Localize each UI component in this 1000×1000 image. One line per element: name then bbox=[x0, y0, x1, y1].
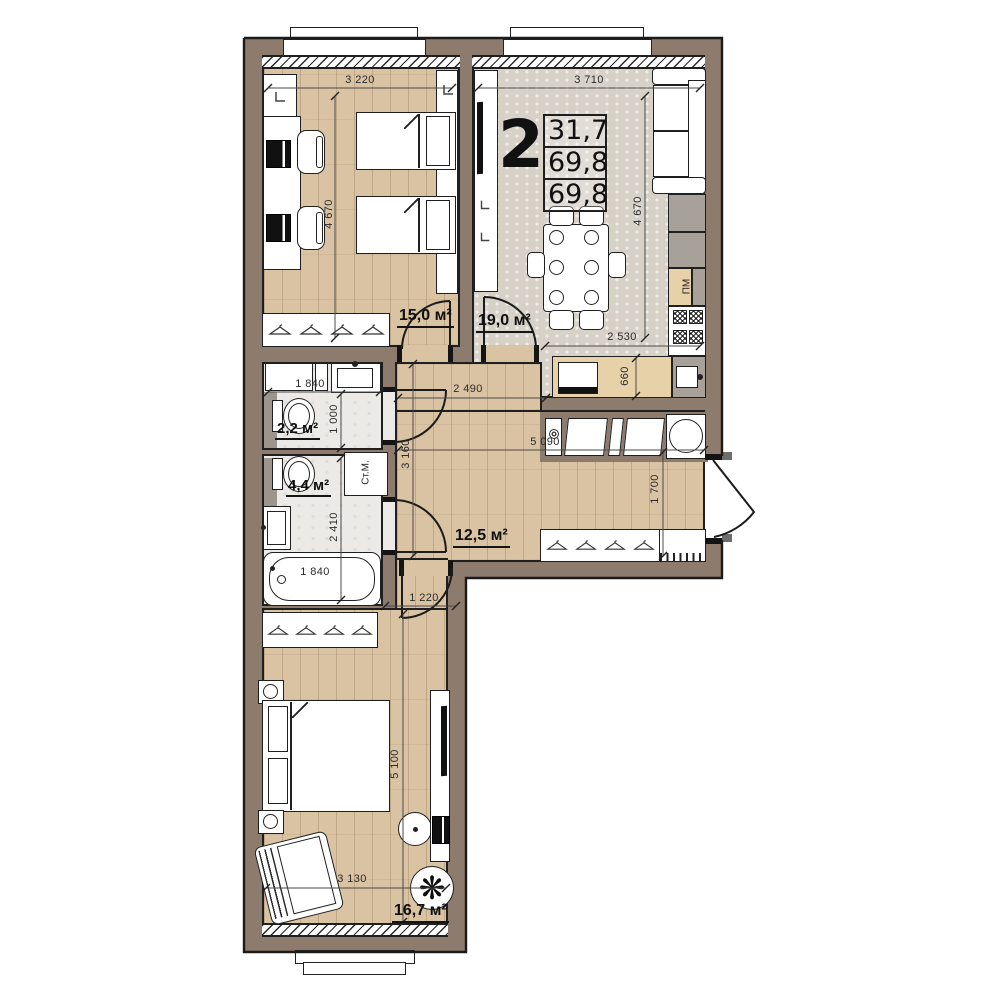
faucet-icon bbox=[261, 525, 266, 530]
dining-chair bbox=[527, 252, 545, 278]
label-hallway-area: 12,5 м² bbox=[453, 527, 510, 548]
door-jamb bbox=[481, 345, 486, 362]
door-jamb bbox=[705, 454, 722, 460]
dim-corridor-width: 1 220 bbox=[384, 592, 464, 604]
kitchen-sink bbox=[676, 366, 698, 388]
dim-kitchen-width: 3 710 bbox=[549, 74, 629, 86]
sofa-cushion bbox=[653, 85, 689, 131]
washing-machine-label: Ст.М. bbox=[361, 443, 372, 503]
monitor-icon bbox=[266, 140, 291, 168]
dim-wc-depth: 1 000 bbox=[328, 379, 340, 459]
hanger-icon bbox=[267, 323, 293, 337]
curtain-bracket-icon bbox=[478, 198, 492, 212]
window-bedroom-bottom bbox=[262, 923, 448, 937]
dining-chair bbox=[549, 310, 574, 330]
door-jamb bbox=[383, 497, 395, 502]
plate-icon bbox=[584, 290, 599, 305]
dining-chair bbox=[579, 310, 604, 330]
doormat-bristles bbox=[660, 553, 705, 561]
blanket-fold bbox=[404, 114, 419, 129]
area-living-value: 31,7 bbox=[543, 114, 607, 148]
kitchen-unit bbox=[692, 268, 706, 306]
closet-hangers bbox=[264, 614, 376, 646]
curtain-bracket-icon bbox=[440, 82, 456, 98]
chair-back bbox=[316, 136, 323, 168]
dim-bedroom-top-depth: 4 670 bbox=[323, 174, 335, 254]
sofa-back bbox=[688, 80, 706, 180]
door-jamb bbox=[383, 387, 395, 392]
washer-drum-icon bbox=[669, 419, 703, 453]
lamp-icon bbox=[263, 814, 278, 829]
label-bathroom-area: 4,4 м² bbox=[286, 477, 331, 497]
door-jamb bbox=[399, 560, 404, 576]
hanger-icon bbox=[632, 539, 656, 552]
doorway-bedroom-bottom bbox=[404, 560, 448, 576]
doormat bbox=[659, 529, 706, 562]
apartment-area-table: 31,7 69,8 69,8 bbox=[543, 116, 607, 212]
window-kitchen bbox=[472, 55, 705, 69]
door-jamb bbox=[383, 440, 395, 445]
exterior-wall-stub-bottom bbox=[452, 560, 722, 578]
tv-icon bbox=[477, 102, 483, 175]
window-sill bbox=[303, 962, 406, 975]
faucet-icon bbox=[697, 374, 703, 380]
burner-icon bbox=[689, 330, 703, 344]
hanger-icon bbox=[360, 323, 386, 337]
burner-icon bbox=[673, 330, 687, 344]
plate-icon bbox=[584, 230, 599, 245]
window-bedroom-top bbox=[262, 55, 460, 69]
door-jamb bbox=[397, 345, 402, 362]
plate-icon bbox=[584, 260, 599, 275]
media-box bbox=[432, 816, 450, 844]
wardrobe-strip bbox=[436, 70, 458, 294]
pillow bbox=[426, 116, 450, 166]
dim-hallway-top-width: 2 490 bbox=[428, 383, 508, 395]
label-kitchen-area: 19,0 м² bbox=[476, 312, 533, 333]
dim-bathtub-length: 1 840 bbox=[275, 566, 355, 578]
pillow bbox=[426, 200, 450, 250]
label-wc-area: 2,2 м² bbox=[275, 420, 320, 440]
burner-icon bbox=[673, 310, 687, 324]
area-total-value: 69,8 bbox=[543, 146, 607, 180]
entrance-jamb bbox=[722, 452, 732, 460]
entrance-jamb bbox=[722, 534, 732, 542]
chair-back bbox=[316, 212, 323, 244]
floor-plan: ПМ 2 31,7 69,8 69,8 Ст.М. bbox=[0, 0, 1000, 1000]
dim-hallway-width: 5 090 bbox=[505, 436, 585, 448]
door-jamb bbox=[705, 538, 722, 544]
dim-counter-depth: 660 bbox=[619, 336, 631, 416]
window-sill bbox=[283, 39, 426, 56]
wall-bedroom-kitchen bbox=[460, 57, 472, 345]
burner-icon bbox=[689, 310, 703, 324]
hanger-icon bbox=[574, 539, 598, 552]
counter-tv bbox=[558, 362, 598, 394]
plate-icon bbox=[549, 290, 564, 305]
door-jamb bbox=[448, 345, 453, 362]
dim-entry-depth: 1 700 bbox=[649, 449, 661, 529]
dim-bedroom-top-width: 3 220 bbox=[320, 74, 400, 86]
blanket-fold bbox=[404, 198, 419, 213]
plate-icon bbox=[549, 260, 564, 275]
lamp-icon bbox=[263, 684, 278, 699]
hanger-icon bbox=[350, 624, 374, 637]
hanger-icon bbox=[298, 323, 324, 337]
office-chair bbox=[297, 130, 325, 174]
tv-screen bbox=[559, 387, 597, 393]
hanger-icon bbox=[322, 624, 346, 637]
blanket-fold bbox=[292, 702, 308, 718]
bath-sink-basin bbox=[267, 511, 286, 545]
area-full-value: 69,8 bbox=[543, 178, 607, 212]
curtain-box bbox=[263, 74, 297, 120]
plate-icon bbox=[549, 230, 564, 245]
curtain-bracket-icon bbox=[478, 230, 492, 244]
hanger-icon bbox=[266, 624, 290, 637]
dim-hallway-left-depth: 3 160 bbox=[400, 414, 412, 494]
door-jamb bbox=[534, 345, 539, 362]
faucet-icon bbox=[352, 361, 358, 367]
hall-closet-hangers bbox=[542, 531, 658, 560]
doorway-bedroom-top bbox=[402, 345, 448, 362]
kitchen-tall-unit bbox=[668, 194, 706, 232]
doorway-wc bbox=[383, 392, 395, 440]
door-jamb bbox=[448, 560, 453, 576]
sofa-armrest bbox=[652, 177, 706, 194]
label-bedroom-bottom-area: 16,7 м² bbox=[392, 902, 449, 923]
dim-bathroom-depth: 2 410 bbox=[328, 487, 340, 567]
doorway-entrance bbox=[705, 460, 722, 538]
sofa-cushion bbox=[653, 131, 689, 177]
window-sill bbox=[503, 39, 652, 56]
doorway-kitchen bbox=[486, 345, 534, 362]
closet-hangers bbox=[264, 315, 388, 345]
curtain-bracket-icon bbox=[272, 89, 288, 105]
table-center bbox=[413, 827, 418, 832]
door-jamb bbox=[383, 550, 395, 555]
label-bedroom-top-area: 15,0 м² bbox=[397, 307, 454, 328]
hanger-icon bbox=[545, 539, 569, 552]
dim-bedroom-bottom-width: 3 130 bbox=[312, 873, 392, 885]
doorway-bathroom bbox=[383, 502, 395, 550]
pillow bbox=[268, 758, 288, 804]
hanger-icon bbox=[329, 323, 355, 337]
hanger-icon bbox=[603, 539, 627, 552]
apartment-type-number: 2 bbox=[498, 112, 544, 178]
monitor-icon bbox=[266, 214, 291, 242]
tv-icon bbox=[441, 706, 447, 777]
blanket-edge bbox=[290, 702, 292, 810]
dim-bedroom-bottom-depth: 5 100 bbox=[389, 724, 401, 804]
dining-chair bbox=[608, 252, 626, 278]
dim-kitchen-depth: 4 670 bbox=[632, 171, 644, 251]
pillow bbox=[268, 706, 288, 752]
office-chair bbox=[297, 206, 325, 250]
toilet-tank bbox=[272, 458, 283, 490]
hanger-icon bbox=[294, 624, 318, 637]
